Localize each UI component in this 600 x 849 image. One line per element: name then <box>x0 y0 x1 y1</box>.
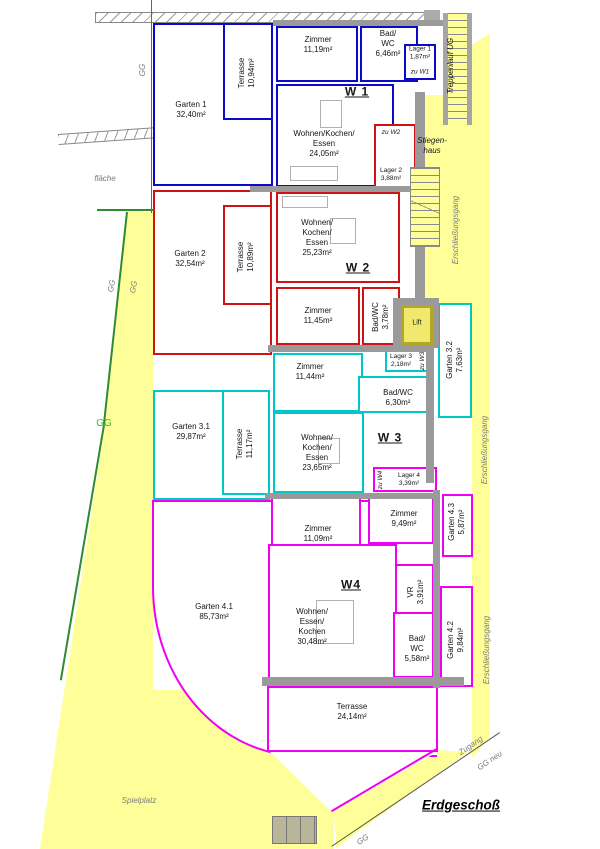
label-w2-lager: Lager 2 3,88m² <box>380 167 402 183</box>
label-w4-lager-zu: zu W4 <box>377 471 385 489</box>
label-w1-bad: Bad/ WC 6,46m² <box>376 29 401 59</box>
label-erschliessungsgang-3: Erschließungsgang <box>482 616 492 684</box>
label-w4-lager: Lager 4 3,39m² <box>398 472 420 488</box>
label-stiegenhaus: Stiegen- haus <box>417 136 447 156</box>
label-w1-lager-zu: zu W1 <box>409 69 431 77</box>
label-w1-zimmer: Zimmer 11,19m² <box>304 35 333 55</box>
label-w4-zimmer-1: Zimmer 11,09m² <box>304 524 333 544</box>
furniture-table <box>320 100 342 128</box>
label-w2-garten: Garten 2 32,54m² <box>174 249 205 269</box>
apartment-title-w3: W 3 <box>378 431 402 446</box>
label-erschliessungsgang-2: Erschließungsgang <box>480 416 490 484</box>
label-w1-lager: Lager 1 1,87m² zu W1 <box>409 38 431 85</box>
label-w3-lager-zu: zu W3 <box>419 352 427 370</box>
label-gg-green: GG <box>96 418 112 431</box>
label-gg-neu: GG neu <box>476 749 505 773</box>
stair-stiegenhaus <box>410 167 440 247</box>
label-w1-terrasse: Terrasse 10,94m² <box>237 58 257 89</box>
floor-plan: Zimmer 11,19m² Bad/ WC 6,46m² Terrasse 1… <box>0 0 600 849</box>
wall <box>265 493 438 499</box>
label-gg-mid-b: GG <box>128 280 140 294</box>
furniture-sofa <box>290 166 338 181</box>
label-gg-top: GG <box>138 64 148 76</box>
label-w3-garten-32: Garten 3.2 7,63m² <box>445 341 465 379</box>
label-flaeche: fläche <box>94 174 115 184</box>
label-erschliessungsgang-1: Erschließungsgang <box>451 196 461 264</box>
wall <box>262 677 464 686</box>
shed <box>272 816 317 844</box>
label-lift: Lift <box>412 320 421 329</box>
label-w2-zimmer: Zimmer 11,45m² <box>304 306 333 326</box>
furniture-kitchen <box>282 196 328 208</box>
label-w3-zimmer: Zimmer 11,44m² <box>296 362 325 382</box>
label-w4-terrasse: Terrasse 24,14m² <box>337 702 368 722</box>
page-title: Erdgeschoß <box>422 798 500 815</box>
label-w2-lager-zu: zu W2 <box>382 129 400 137</box>
site-boundary-green <box>151 0 153 213</box>
label-gg-bottom: GG <box>355 832 371 847</box>
label-treppenlauf-ug: Treppenlauf UG <box>446 38 456 94</box>
label-w4-vr: VR 3,91m² <box>406 580 426 605</box>
furniture-table <box>330 218 356 244</box>
label-w1-wohnen: Wohnen/Kochen/ Essen 24,05m² <box>293 129 354 159</box>
label-w4-garten-42: Garten 4.2 9,84m² <box>446 621 466 659</box>
label-spielplatz: Spielplatz <box>122 796 157 806</box>
apartment-title-w1: W 1 <box>345 85 369 100</box>
label-w2-terrasse: Terrasse 10,89m² <box>236 242 256 273</box>
label-w1-lager-text: Lager 1 1,87m² <box>409 45 431 61</box>
site-boundary-green <box>97 209 154 211</box>
label-w3-wohnen: Wohnen/ Kochen/ Essen 23,65m² <box>301 433 333 473</box>
label-w4-wohnen: Wohnen/ Essen/ Kochen 30,48m² <box>296 607 328 647</box>
wall <box>433 490 440 688</box>
label-w3-lager: Lager 3 2,18m² <box>390 353 412 369</box>
label-w4-zimmer-2: Zimmer 9,49m² <box>390 509 417 529</box>
wall <box>273 20 443 26</box>
label-w2-wohnen: Wohnen/ Kochen/ Essen 25,23m² <box>301 218 333 258</box>
apartment-title-w2: W 2 <box>346 261 370 276</box>
label-w4-garten-41: Garten 4.1 85,73m² <box>195 602 233 622</box>
label-w2-bad: Bad/WC 3,78m² <box>371 302 391 332</box>
label-w4-garten-43: Garten 4.3 5,87m² <box>447 503 467 541</box>
label-w1-garten: Garten 1 32,40m² <box>175 100 206 120</box>
wall <box>250 186 418 192</box>
label-w3-garten-31: Garten 3.1 29,87m² <box>172 422 210 442</box>
label-w3-bad: Bad/WC 6,30m² <box>383 388 413 408</box>
label-gg-mid-a: GG <box>106 279 118 293</box>
label-w4-bad: Bad/ WC 5,58m² <box>405 634 430 664</box>
label-w3-terrasse: Terrasse 11,17m² <box>235 429 255 460</box>
apartment-title-w4: W4 <box>341 578 361 593</box>
